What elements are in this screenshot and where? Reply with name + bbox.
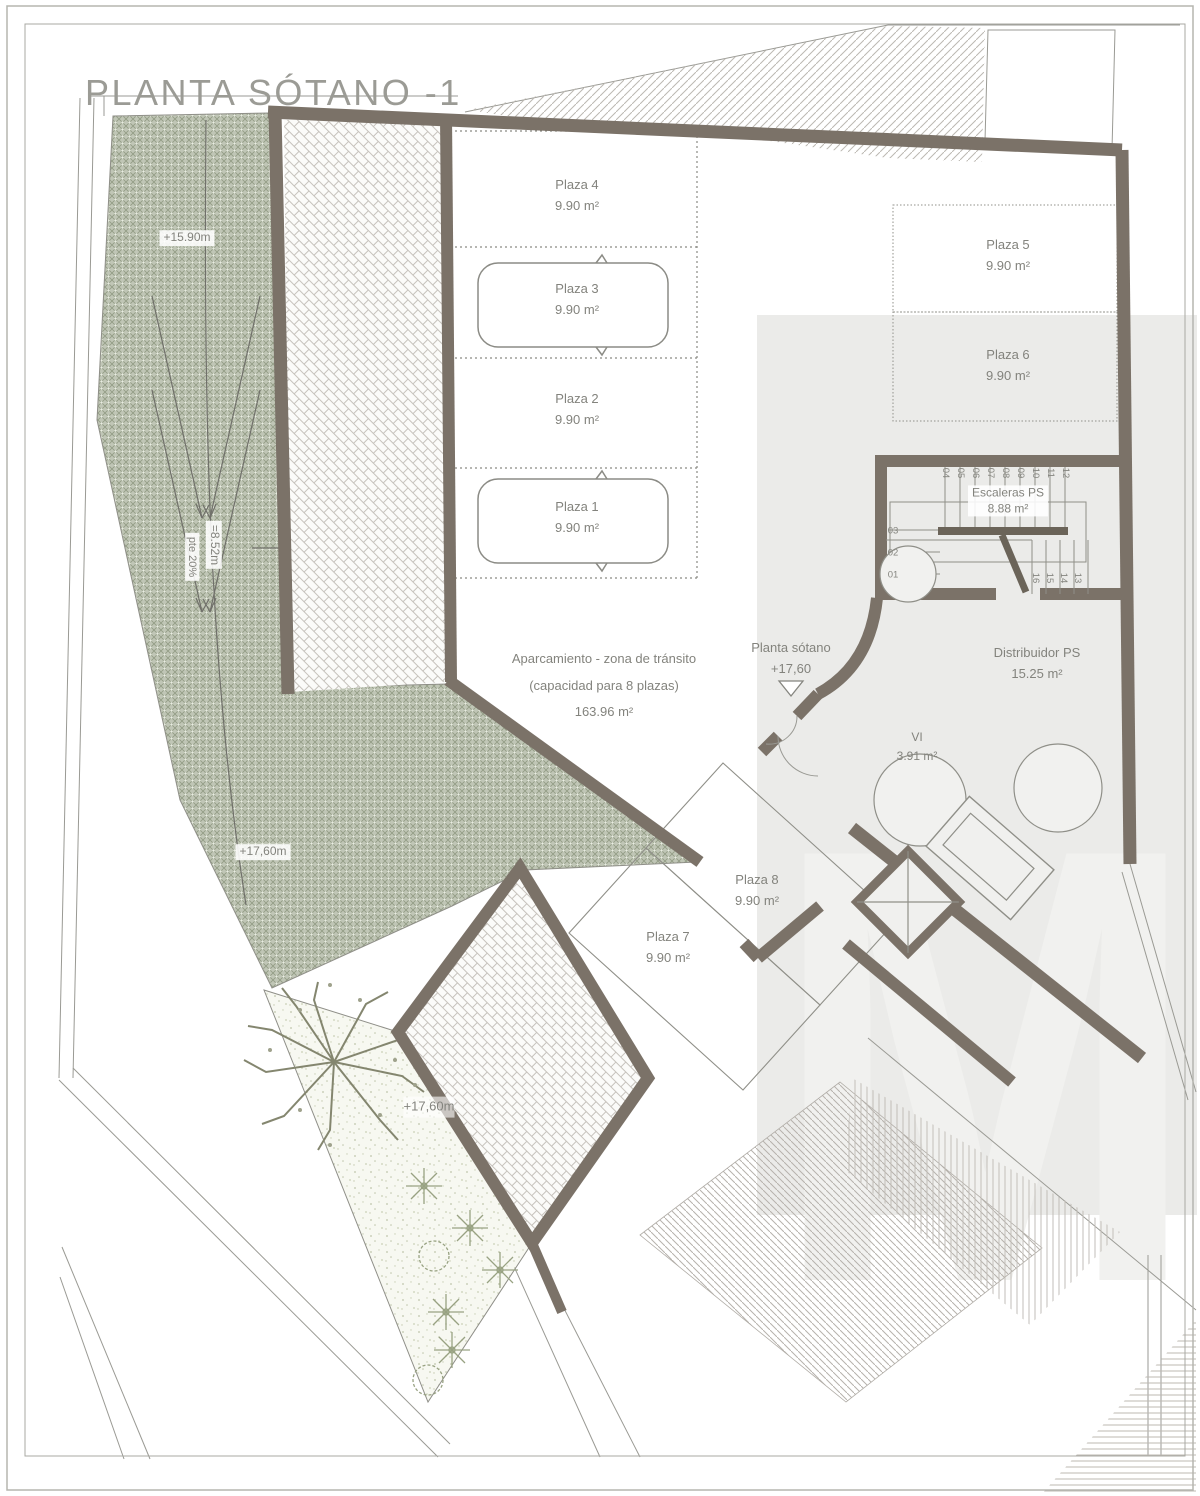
floor-plan-page: M — [0, 0, 1200, 1496]
floor-plan-canvas: M — [0, 0, 1200, 1496]
